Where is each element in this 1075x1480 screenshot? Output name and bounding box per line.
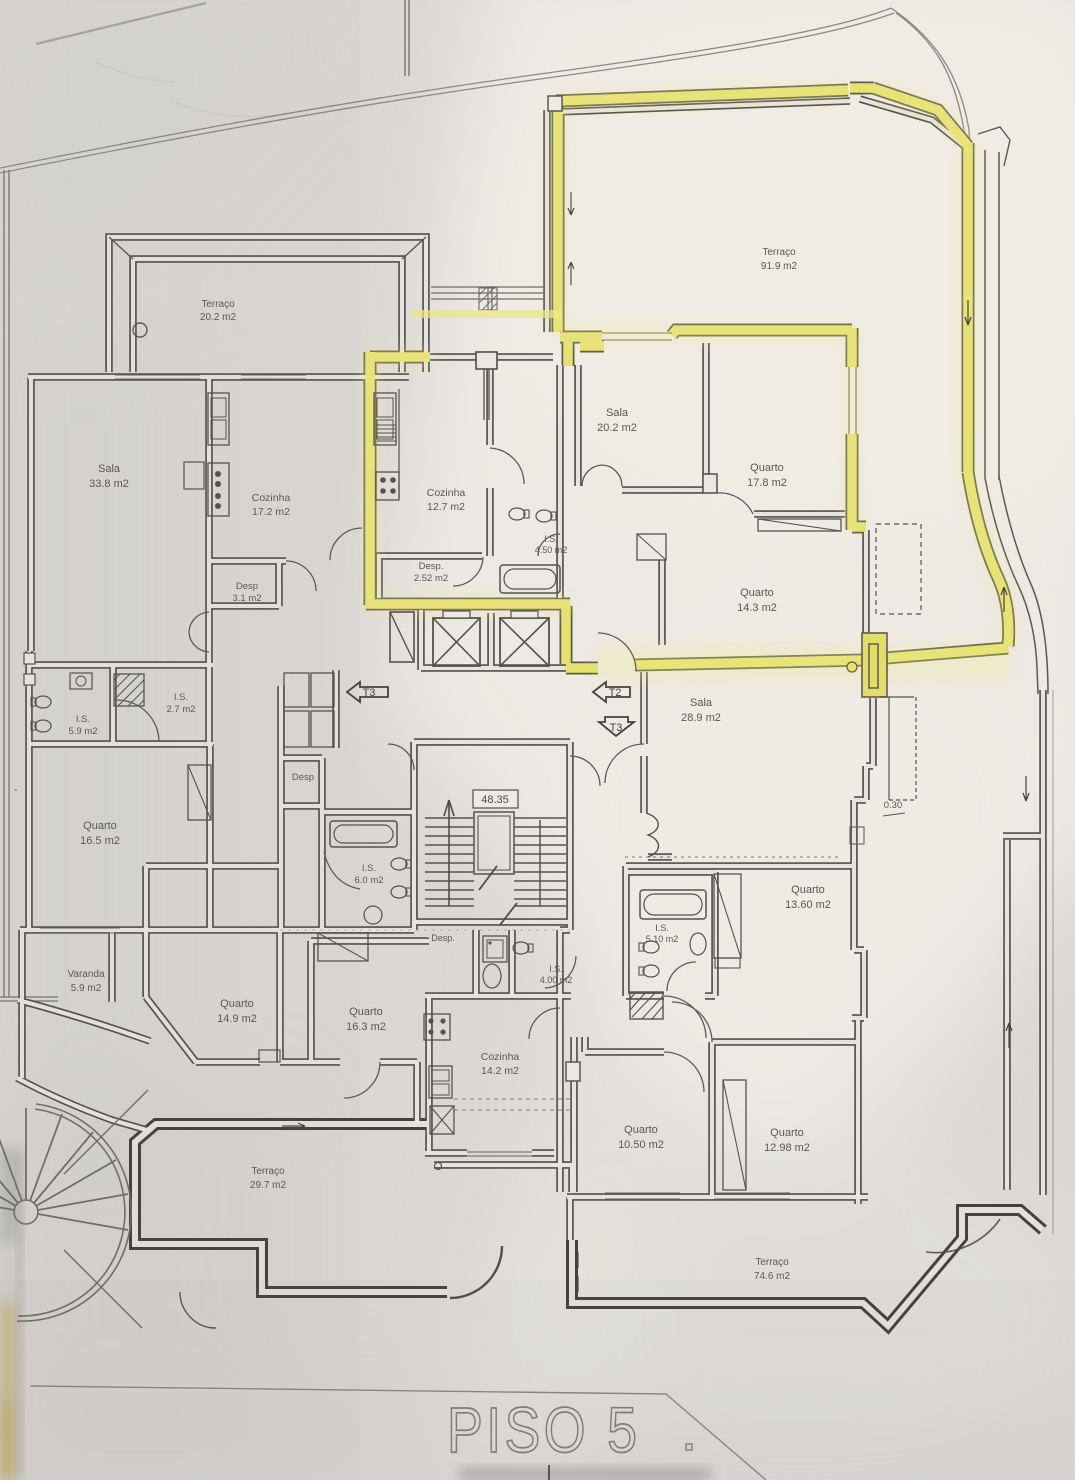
svg-text:T2: T2	[609, 687, 622, 699]
svg-text:91.9 m2: 91.9 m2	[761, 261, 798, 272]
svg-text:14.2 m2: 14.2 m2	[481, 1065, 519, 1077]
svg-text:13.60 m2: 13.60 m2	[785, 899, 831, 911]
svg-text:14.3 m2: 14.3 m2	[737, 602, 777, 614]
svg-text:I.S.: I.S.	[362, 863, 376, 874]
svg-text:5.10 m2: 5.10 m2	[646, 934, 679, 944]
svg-text:Sala: Sala	[690, 697, 713, 709]
svg-text:28.9 m2: 28.9 m2	[681, 712, 721, 724]
svg-text:Cozinha: Cozinha	[427, 487, 466, 499]
svg-text:10.50 m2: 10.50 m2	[618, 1139, 664, 1151]
svg-text:Quarto: Quarto	[770, 1127, 804, 1139]
svg-text:Quarto: Quarto	[750, 462, 784, 474]
svg-text:Terraço: Terraço	[762, 247, 796, 258]
svg-text:Cozinha: Cozinha	[481, 1051, 520, 1063]
svg-text:0.30: 0.30	[884, 800, 903, 811]
svg-text:I.S.: I.S.	[655, 923, 669, 933]
svg-text:12.7 m2: 12.7 m2	[427, 501, 465, 513]
svg-text:17.8 m2: 17.8 m2	[747, 477, 787, 489]
svg-text:Terraço: Terraço	[755, 1257, 789, 1268]
svg-text:I.S.: I.S.	[549, 964, 563, 974]
svg-text:T3: T3	[610, 722, 623, 734]
svg-text:Desp.: Desp.	[431, 933, 455, 943]
svg-text:Quarto: Quarto	[791, 884, 825, 896]
svg-text:20.2 m2: 20.2 m2	[597, 422, 637, 434]
svg-text:48.35: 48.35	[481, 794, 509, 806]
svg-text:Desp.: Desp.	[419, 561, 444, 572]
svg-text:2.52 m2: 2.52 m2	[414, 573, 448, 584]
svg-text:4.50 m2: 4.50 m2	[535, 545, 568, 555]
svg-text:Quarto: Quarto	[624, 1124, 658, 1136]
svg-text:12.98 m2: 12.98 m2	[764, 1142, 810, 1154]
svg-text:T3: T3	[363, 687, 376, 699]
svg-text:Sala: Sala	[606, 407, 629, 419]
svg-text:Quarto: Quarto	[740, 587, 774, 599]
svg-text:4.00 m2: 4.00 m2	[540, 975, 573, 985]
svg-text:I.S.: I.S.	[544, 534, 558, 544]
